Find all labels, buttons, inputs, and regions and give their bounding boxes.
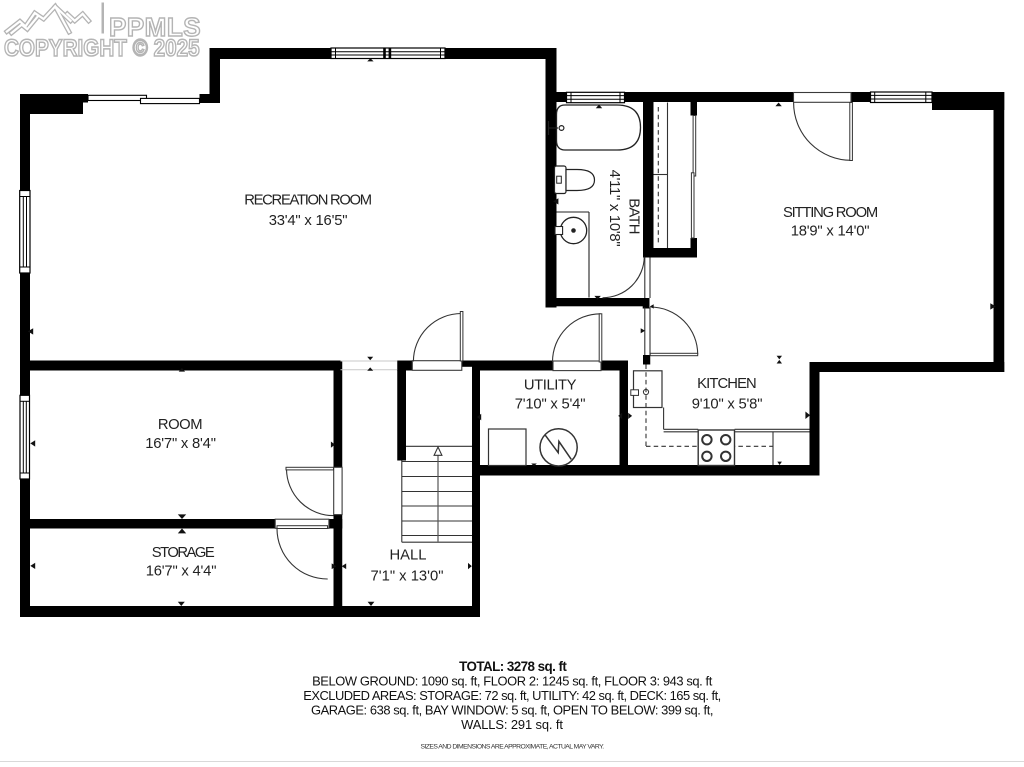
svg-text:COPYRIGHT © 2025: COPYRIGHT © 2025	[4, 35, 200, 62]
svg-text:WALLS: 291 sq. ft: WALLS: 291 sq. ft	[461, 717, 563, 732]
svg-text:4'11" x 10'8": 4'11" x 10'8"	[606, 170, 622, 247]
svg-text:9'10" x 5'8": 9'10" x 5'8"	[692, 397, 763, 413]
svg-text:ROOM: ROOM	[158, 417, 202, 433]
svg-text:RECREATION ROOM: RECREATION ROOM	[244, 193, 372, 209]
svg-text:GARAGE: 638 sq. ft, BAY WINDOW: GARAGE: 638 sq. ft, BAY WINDOW: 5 sq. ft…	[311, 703, 713, 718]
svg-text:STORAGE: STORAGE	[152, 545, 215, 561]
svg-text:TOTAL: 3278 sq. ft: TOTAL: 3278 sq. ft	[459, 659, 567, 674]
svg-text:7'1" x 13'0": 7'1" x 13'0"	[371, 569, 444, 585]
svg-text:16'7" x 8'4": 16'7" x 8'4"	[145, 436, 216, 452]
svg-text:SIZES AND DIMENSIONS ARE APPRO: SIZES AND DIMENSIONS ARE APPROXIMATE, AC…	[420, 744, 604, 751]
svg-text:16'7" x 4'4": 16'7" x 4'4"	[146, 564, 217, 580]
svg-text:UTILITY: UTILITY	[524, 378, 577, 394]
svg-text:33'4" x 16'5": 33'4" x 16'5"	[269, 213, 348, 229]
svg-text:EXCLUDED AREAS: STORAGE: 72 sq: EXCLUDED AREAS: STORAGE: 72 sq. ft, UTIL…	[303, 688, 720, 703]
svg-text:7'10" x 5'4": 7'10" x 5'4"	[515, 397, 586, 413]
svg-text:BATH: BATH	[625, 198, 641, 234]
svg-text:BELOW GROUND: 1090 sq. ft, FLO: BELOW GROUND: 1090 sq. ft, FLOOR 2: 1245…	[312, 674, 713, 689]
svg-text:HALL: HALL	[389, 548, 426, 564]
svg-text:SITTING ROOM: SITTING ROOM	[783, 205, 878, 221]
svg-text:18'9" x 14'0": 18'9" x 14'0"	[791, 224, 870, 240]
svg-text:KITCHEN: KITCHEN	[697, 376, 756, 392]
